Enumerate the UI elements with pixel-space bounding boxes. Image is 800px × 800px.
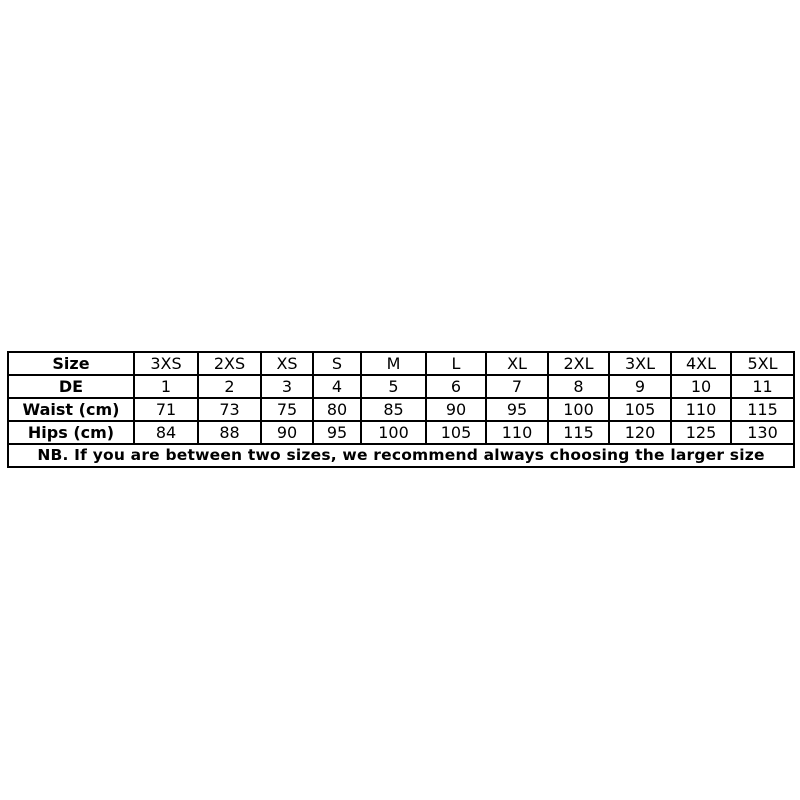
table-row-de: DE 1 2 3 4 5 6 7 8 9 10 11 (8, 375, 794, 398)
hips-value-cell: 120 (609, 421, 671, 444)
de-value-cell: 5 (361, 375, 426, 398)
waist-value-cell: 95 (486, 398, 548, 421)
size-label-cell: XL (486, 352, 548, 375)
row-header-waist: Waist (cm) (8, 398, 134, 421)
page-background: Size 3XS 2XS XS S M L XL 2XL 3XL 4XL 5XL… (0, 0, 800, 800)
de-value-cell: 4 (313, 375, 361, 398)
size-label-cell: 5XL (731, 352, 794, 375)
sizing-note: NB. If you are between two sizes, we rec… (8, 444, 794, 467)
de-value-cell: 2 (198, 375, 261, 398)
table-row-size: Size 3XS 2XS XS S M L XL 2XL 3XL 4XL 5XL (8, 352, 794, 375)
hips-value-cell: 100 (361, 421, 426, 444)
de-value-cell: 10 (671, 375, 731, 398)
size-chart-table: Size 3XS 2XS XS S M L XL 2XL 3XL 4XL 5XL… (7, 351, 795, 468)
hips-value-cell: 110 (486, 421, 548, 444)
hips-value-cell: 90 (261, 421, 313, 444)
hips-value-cell: 88 (198, 421, 261, 444)
waist-value-cell: 75 (261, 398, 313, 421)
size-label-cell: 3XS (134, 352, 198, 375)
size-label-cell: 3XL (609, 352, 671, 375)
row-header-de: DE (8, 375, 134, 398)
row-header-hips: Hips (cm) (8, 421, 134, 444)
waist-value-cell: 73 (198, 398, 261, 421)
row-header-size: Size (8, 352, 134, 375)
size-label-cell: S (313, 352, 361, 375)
size-label-cell: 2XL (548, 352, 609, 375)
waist-value-cell: 71 (134, 398, 198, 421)
waist-value-cell: 100 (548, 398, 609, 421)
de-value-cell: 6 (426, 375, 486, 398)
de-value-cell: 8 (548, 375, 609, 398)
hips-value-cell: 130 (731, 421, 794, 444)
table-row-note: NB. If you are between two sizes, we rec… (8, 444, 794, 467)
waist-value-cell: 80 (313, 398, 361, 421)
hips-value-cell: 105 (426, 421, 486, 444)
size-label-cell: XS (261, 352, 313, 375)
hips-value-cell: 84 (134, 421, 198, 444)
size-label-cell: M (361, 352, 426, 375)
de-value-cell: 11 (731, 375, 794, 398)
hips-value-cell: 115 (548, 421, 609, 444)
size-label-cell: 4XL (671, 352, 731, 375)
waist-value-cell: 115 (731, 398, 794, 421)
table-row-waist: Waist (cm) 71 73 75 80 85 90 95 100 105 … (8, 398, 794, 421)
size-label-cell: 2XS (198, 352, 261, 375)
de-value-cell: 9 (609, 375, 671, 398)
waist-value-cell: 85 (361, 398, 426, 421)
waist-value-cell: 105 (609, 398, 671, 421)
hips-value-cell: 125 (671, 421, 731, 444)
de-value-cell: 3 (261, 375, 313, 398)
de-value-cell: 7 (486, 375, 548, 398)
hips-value-cell: 95 (313, 421, 361, 444)
de-value-cell: 1 (134, 375, 198, 398)
table-row-hips: Hips (cm) 84 88 90 95 100 105 110 115 12… (8, 421, 794, 444)
size-label-cell: L (426, 352, 486, 375)
waist-value-cell: 110 (671, 398, 731, 421)
waist-value-cell: 90 (426, 398, 486, 421)
